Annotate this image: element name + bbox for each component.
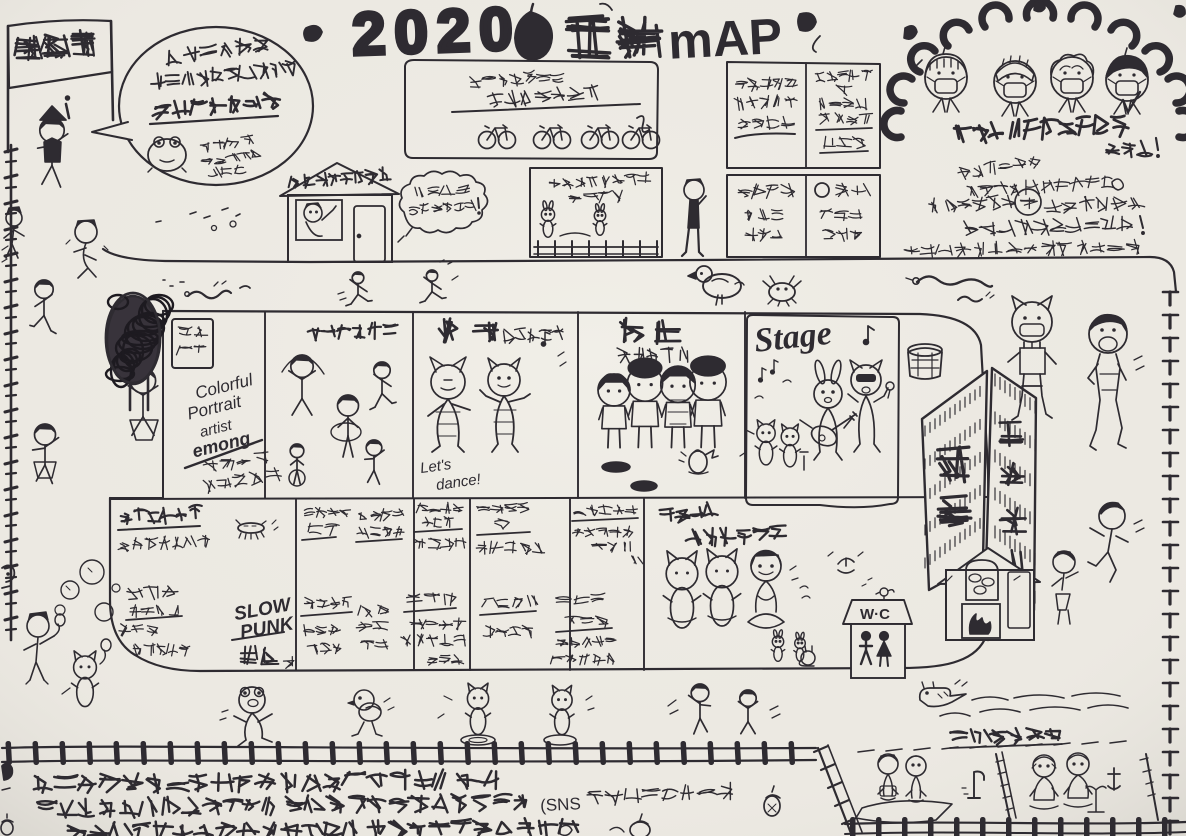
svg-text:2020: 2020 (351, 0, 523, 68)
svg-text:W·C: W·C (860, 606, 890, 623)
svg-text:(SNS: (SNS (540, 794, 582, 815)
svg-text:mAP: mAP (667, 8, 784, 70)
